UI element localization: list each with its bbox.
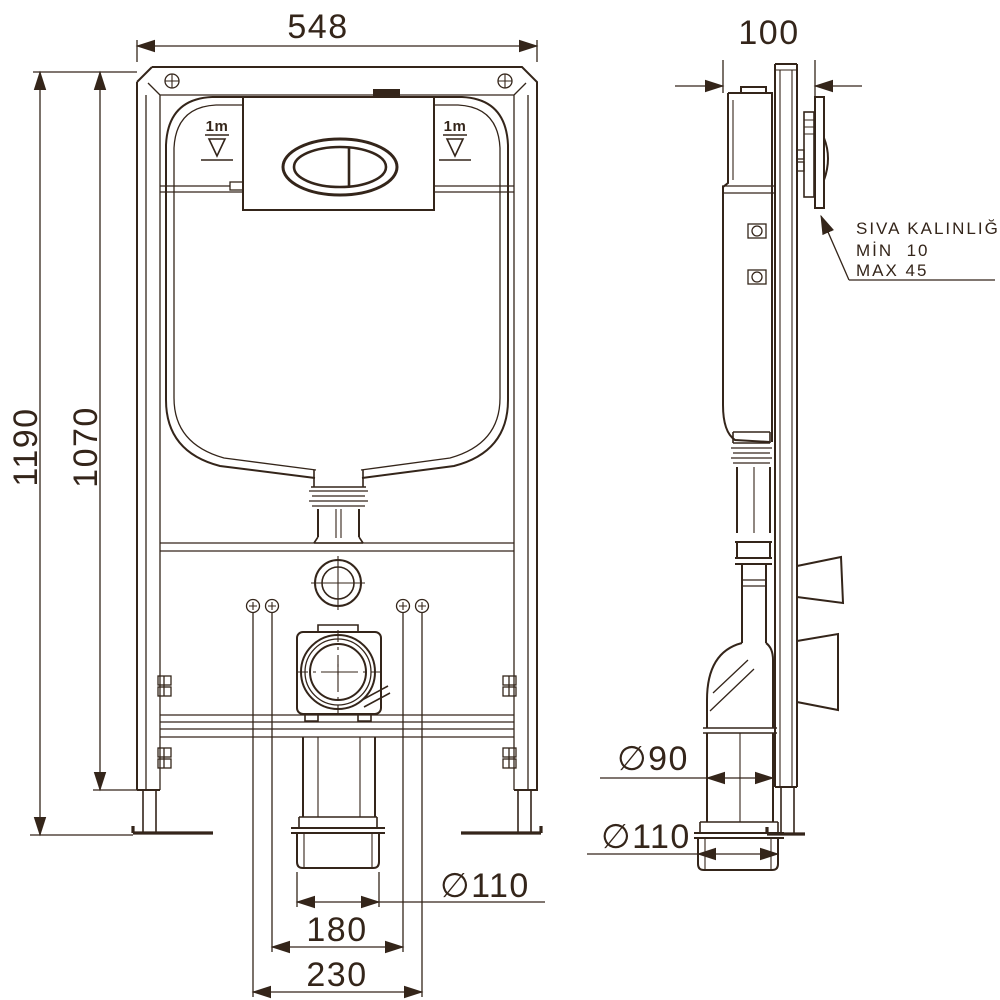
- drain-socket-side: [694, 822, 784, 870]
- cistern-side: [722, 87, 775, 442]
- level-marker-1m: 1m: [201, 118, 233, 160]
- drain-outlet-front: [296, 625, 390, 721]
- dim-label-90: ∅90: [617, 740, 689, 778]
- plaster-annotation: SIVA KALINLIĞI MİN 10 MAX 45: [821, 216, 1000, 280]
- annotation-line3: MAX 45: [856, 261, 928, 280]
- annotation-line1: SIVA KALINLIĞI: [856, 219, 1000, 238]
- level-marker-label: 1m: [444, 118, 467, 135]
- drain-pipe-front: [291, 737, 385, 868]
- level-marker-label: 1m: [206, 118, 229, 135]
- water-inlet: [311, 556, 365, 610]
- dim-height-1070: 1070: [33, 72, 140, 790]
- dim-spacing-180: 180: [272, 911, 403, 949]
- flush-pipe-front: [309, 470, 368, 543]
- cistern-frame-drawing: 548 1190 1070: [0, 0, 1000, 1000]
- technical-drawing-page: 548 1190 1070: [0, 0, 1000, 1000]
- dim-label-1070: 1070: [67, 406, 105, 488]
- dim-label-180: 180: [306, 911, 367, 949]
- flush-plate: [243, 89, 434, 210]
- rail-bracket: [230, 182, 243, 190]
- plate-top-tab: [373, 89, 400, 97]
- wall-brackets: [797, 557, 843, 710]
- dim-label-1190: 1190: [7, 407, 45, 486]
- mid-rail: [160, 543, 514, 551]
- dim-label-548: 548: [287, 8, 348, 46]
- screw-icon: [165, 74, 179, 88]
- flush-plate-side: [797, 97, 828, 208]
- frame-feet: [133, 790, 541, 833]
- annotation-line2: MİN 10: [856, 241, 930, 260]
- dim-outlet-110-front: ∅110: [297, 867, 545, 907]
- screw-icon: [498, 74, 512, 88]
- dim-spacing-230: 230: [253, 956, 422, 994]
- side-view: 100: [587, 14, 1000, 870]
- dim-label-100: 100: [738, 14, 799, 52]
- dim-label-outlet-110: ∅110: [440, 867, 530, 905]
- dim-flush-90: ∅90: [600, 740, 773, 778]
- flush-bend-side: [703, 432, 777, 822]
- anchor-clips-side: [748, 224, 766, 284]
- lower-rails: [160, 715, 514, 737]
- level-marker-1m: 1m: [439, 118, 471, 160]
- frame-side-foot: [781, 787, 794, 833]
- dim-label-230: 230: [306, 956, 367, 994]
- dim-depth-100: 100: [675, 14, 862, 96]
- dim-label-110-side: ∅110: [601, 818, 691, 856]
- front-view: 548 1190 1070: [7, 8, 545, 997]
- dim-width-548: 548: [137, 8, 537, 62]
